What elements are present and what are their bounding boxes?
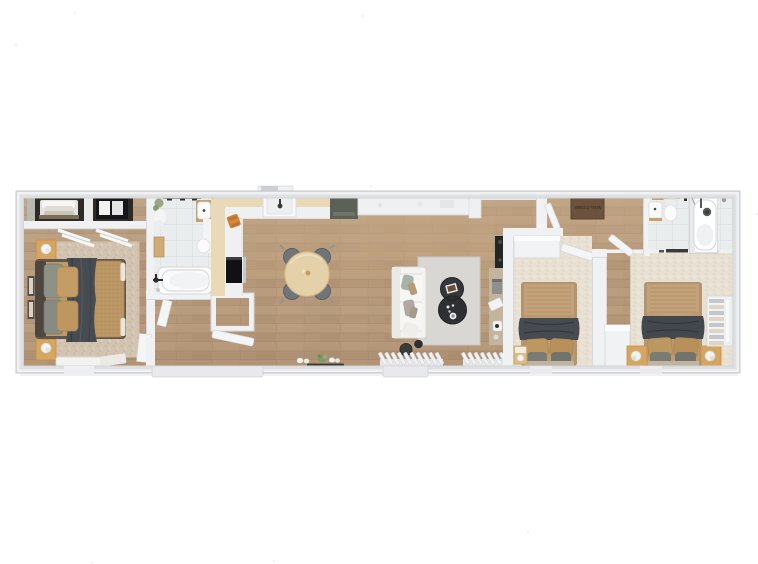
svg-text:WELCOME: WELCOME — [574, 205, 601, 210]
